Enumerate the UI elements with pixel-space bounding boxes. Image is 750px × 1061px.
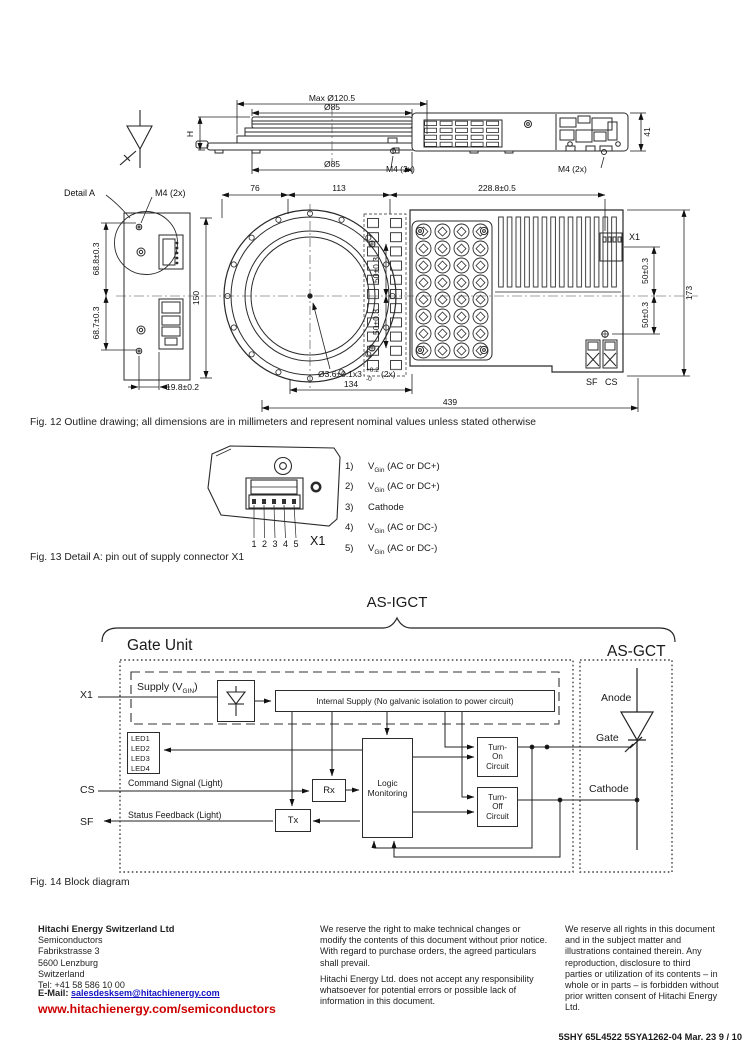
gate-unit-label: Gate Unit bbox=[127, 637, 192, 655]
rectifier-diode-box bbox=[217, 680, 255, 722]
pin-desc-sub: Gin bbox=[374, 548, 384, 555]
dim-439: 439 bbox=[443, 397, 457, 407]
detail-a-label: Detail A bbox=[64, 188, 95, 198]
company-name: Hitachi Energy Switzerland Ltd bbox=[38, 924, 174, 934]
pin-digit-4: 4 bbox=[283, 539, 288, 549]
dim-m4-detail: M4 (2x) bbox=[155, 188, 186, 198]
turn-on-line3: Circuit bbox=[486, 762, 509, 772]
x1-block-label: X1 bbox=[80, 689, 93, 701]
email-row: E-Mail: salesdesksem@hitachienergy.com bbox=[38, 988, 220, 999]
turn-off-circuit-box: Turn- Off Circuit bbox=[477, 787, 518, 827]
company-line: Semiconductors bbox=[38, 935, 268, 946]
cs-block-label: CS bbox=[80, 784, 95, 796]
dim-688: 68.8±0.3 bbox=[91, 242, 101, 275]
dim-50-a: 50±0.3 bbox=[371, 257, 381, 283]
legal-center-block: We reserve the right to make technical c… bbox=[320, 924, 548, 1007]
legal-paragraph: We reserve the right to make technical c… bbox=[320, 924, 548, 969]
x1-detail-label: X1 bbox=[310, 534, 325, 548]
pin-desc-post: (AC or DC-) bbox=[384, 522, 437, 533]
supply-pre: Supply (V bbox=[137, 681, 183, 693]
company-address-block: Hitachi Energy Switzerland Ltd Semicondu… bbox=[38, 924, 268, 991]
document-reference: 5SHY 65L4522 5SYA1262-04 Mar. 23 9 / 10 bbox=[480, 1032, 742, 1042]
fig14-caption: Fig. 14 Block diagram bbox=[30, 877, 130, 888]
pin-row-1: 1)VGin (AC or DC+) bbox=[345, 459, 440, 479]
anode-label: Anode bbox=[601, 692, 631, 704]
legal-paragraph: Hitachi Energy Ltd. does not accept any … bbox=[320, 974, 548, 1008]
pin-digit-3: 3 bbox=[272, 539, 277, 549]
as-gct-label: AS-GCT bbox=[607, 643, 666, 661]
dim-hole: Ø3.6±0.1x3 bbox=[318, 369, 362, 379]
fig13-caption: Fig. 13 Detail A: pin out of supply conn… bbox=[30, 552, 244, 563]
as-igct-title: AS-IGCT bbox=[330, 594, 464, 611]
x1-pin-list: 1)VGin (AC or DC+) 2)VGin (AC or DC+) 3)… bbox=[345, 459, 440, 561]
company-line: 5600 Lenzburg bbox=[38, 958, 268, 969]
pin-digit-2: 2 bbox=[262, 539, 267, 549]
led4-label: LED4 bbox=[131, 764, 159, 774]
dim-50-d: 50±0.3 bbox=[640, 302, 650, 328]
pin-desc: Cathode bbox=[368, 502, 404, 513]
dim-50-c: 50±0.3 bbox=[640, 258, 650, 284]
dim-hole-sup: +0.2 bbox=[366, 367, 379, 374]
command-signal-label: Command Signal (Light) bbox=[128, 778, 223, 788]
dim-50-b: 50±0.3 bbox=[371, 309, 381, 335]
logic-line2: Monitoring bbox=[368, 788, 408, 798]
pin-number: 2) bbox=[345, 479, 368, 496]
pin-number: 5) bbox=[345, 541, 368, 558]
internal-supply-box: Internal Supply (No galvanic isolation t… bbox=[275, 690, 555, 712]
pin-digit-5: 5 bbox=[293, 539, 298, 549]
dim-41: 41 bbox=[642, 127, 652, 137]
fig13-detail-drawing bbox=[208, 446, 340, 538]
tx-box: Tx bbox=[275, 809, 311, 832]
pin-desc-pre: Cathode bbox=[368, 502, 404, 513]
turn-off-line1: Turn- bbox=[488, 793, 507, 803]
dim-m4-top-right: M4 (2x) bbox=[558, 164, 587, 174]
pin-desc: VGin (AC or DC+) bbox=[368, 461, 440, 472]
sf-label: SF bbox=[586, 377, 598, 387]
company-line: Fabrikstrasse 3 bbox=[38, 946, 268, 957]
dim-h: H bbox=[185, 131, 195, 137]
diode-icon bbox=[218, 681, 254, 721]
datasheet-page: Max Ø120.5 Ø85 Ø85 H M4 (2x) M4 (2x) 41 … bbox=[0, 0, 750, 1061]
dim-687: 68.7±0.3 bbox=[91, 306, 101, 339]
led1-label: LED1 bbox=[131, 734, 159, 744]
supply-sub: GIN bbox=[183, 688, 195, 695]
dim-173: 173 bbox=[684, 286, 694, 300]
pin-desc-sub: Gin bbox=[374, 528, 384, 535]
pin-desc-post: (AC or DC+) bbox=[384, 461, 439, 472]
pin-desc-sub: Gin bbox=[374, 487, 384, 494]
dim-hole-2x: (2x) bbox=[381, 369, 396, 379]
dim-m4-top-left: M4 (2x) bbox=[386, 164, 415, 174]
dim-hole-sub: -0 bbox=[366, 376, 372, 383]
fig13-labels: 1 2 3 4 5 X1 bbox=[251, 534, 325, 549]
dim-dia85-bottom: Ø85 bbox=[324, 159, 340, 169]
legal-paragraph: We reserve all rights in this document a… bbox=[565, 924, 720, 1014]
pin-desc: VGin (AC or DC+) bbox=[368, 481, 440, 492]
gate-label: Gate bbox=[596, 732, 619, 744]
thyristor-symbol-icon bbox=[120, 110, 152, 168]
dim-134: 134 bbox=[344, 379, 358, 389]
legal-right-block: We reserve all rights in this document a… bbox=[565, 924, 720, 1014]
pin-row-3: 3)Cathode bbox=[345, 500, 440, 520]
cs-label: CS bbox=[605, 377, 618, 387]
status-feedback-label: Status Feedback (Light) bbox=[128, 810, 221, 820]
dim-113: 113 bbox=[332, 183, 346, 193]
pin-row-4: 4)VGin (AC or DC-) bbox=[345, 520, 440, 540]
supply-post: ) bbox=[194, 681, 198, 693]
turn-off-line2: Off bbox=[492, 802, 503, 812]
turn-off-line3: Circuit bbox=[486, 812, 509, 822]
pin-desc: VGin (AC or DC-) bbox=[368, 522, 437, 533]
company-line: Switzerland bbox=[38, 969, 268, 980]
pin-desc-sub: Gin bbox=[374, 467, 384, 474]
email-link[interactable]: salesdesksem@hitachienergy.com bbox=[71, 988, 220, 998]
pin-row-5: 5)VGin (AC or DC-) bbox=[345, 541, 440, 561]
turn-on-circuit-box: Turn- On Circuit bbox=[477, 737, 518, 777]
pin-desc: VGin (AC or DC-) bbox=[368, 543, 437, 554]
pin-desc-post: (AC or DC+) bbox=[384, 481, 439, 492]
email-label: E-Mail: bbox=[38, 988, 68, 998]
pin-digit-1: 1 bbox=[251, 539, 256, 549]
pin-number: 1) bbox=[345, 459, 368, 476]
dim-dia85-top: Ø85 bbox=[324, 102, 340, 112]
rx-box: Rx bbox=[312, 779, 346, 802]
turn-on-line1: Turn- bbox=[488, 743, 507, 753]
dim-150: 150 bbox=[191, 291, 201, 305]
dim-2288: 228.8±0.5 bbox=[478, 183, 516, 193]
dim-76: 76 bbox=[250, 183, 260, 193]
pin-row-2: 2)VGin (AC or DC+) bbox=[345, 479, 440, 499]
logic-line1: Logic bbox=[377, 778, 397, 788]
pin-desc-post: (AC or DC-) bbox=[384, 543, 437, 554]
cathode-label: Cathode bbox=[589, 783, 629, 795]
x1-connector-label: X1 bbox=[629, 232, 640, 242]
dim-198: 19.8±0.2 bbox=[166, 382, 199, 392]
pin-number: 3) bbox=[345, 500, 368, 517]
pin-number: 4) bbox=[345, 520, 368, 537]
led3-label: LED3 bbox=[131, 754, 159, 764]
website-link[interactable]: www.hitachienergy.com/semiconductors bbox=[38, 1002, 276, 1016]
fig12-caption: Fig. 12 Outline drawing; all dimensions … bbox=[30, 417, 536, 428]
led2-label: LED2 bbox=[131, 744, 159, 754]
sf-block-label: SF bbox=[80, 816, 93, 828]
supply-label: Supply (VGIN) bbox=[137, 681, 198, 695]
turn-on-line2: On bbox=[492, 752, 503, 762]
logic-monitoring-box: Logic Monitoring bbox=[362, 738, 413, 838]
led-box: LED1 LED2 LED3 LED4 bbox=[127, 732, 160, 774]
